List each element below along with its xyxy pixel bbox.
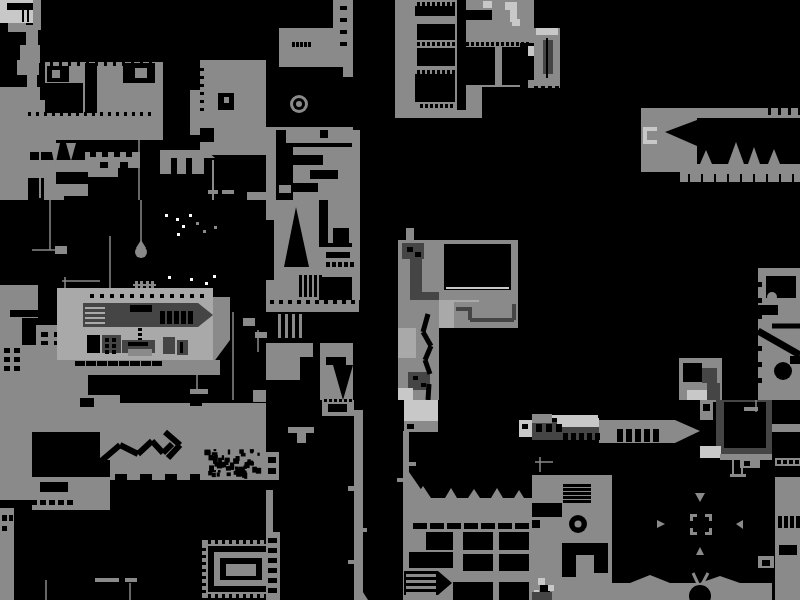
game-map-screen bbox=[0, 0, 800, 600]
game-map-canvas[interactable] bbox=[0, 0, 800, 600]
